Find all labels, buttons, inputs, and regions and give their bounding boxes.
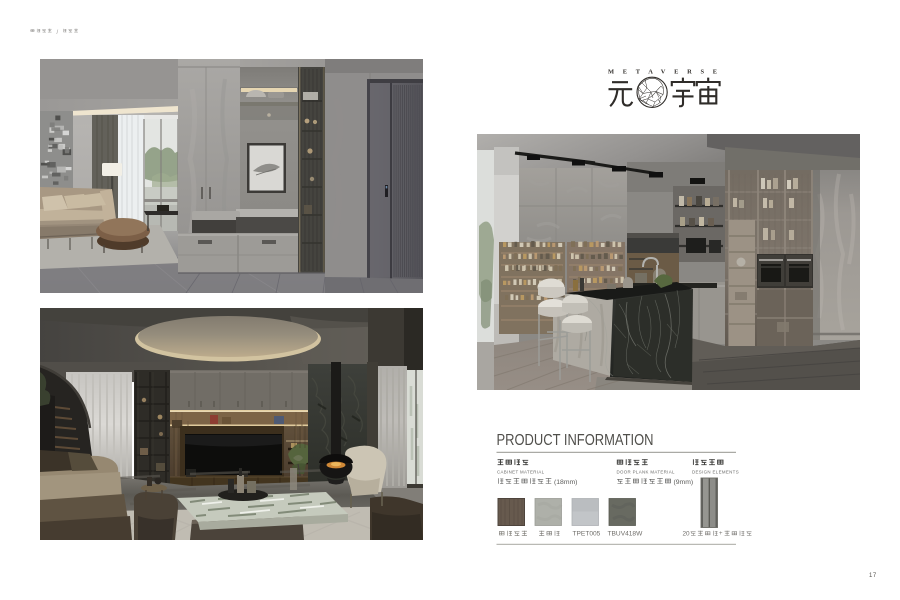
svg-text:(9mm): (9mm) [674,479,694,486]
svg-text:METAVERSE: METAVERSE [608,69,717,76]
svg-text:+: + [719,531,723,537]
svg-text:TBUV418W: TBUV418W [608,531,644,538]
svg-text:PRODUCT INFORMATION: PRODUCT INFORMATION [497,432,654,449]
svg-text:TPET005: TPET005 [573,531,601,538]
svg-text:DESIGN ELEMENTS: DESIGN ELEMENTS [692,470,739,475]
svg-text:CABINET MATERIAL: CABINET MATERIAL [497,470,545,475]
svg-text:(18mm): (18mm) [554,479,577,486]
svg-text:20: 20 [683,531,691,538]
svg-text:DOOR PLANK MATERIAL: DOOR PLANK MATERIAL [617,470,675,475]
svg-text:/: / [57,30,59,36]
